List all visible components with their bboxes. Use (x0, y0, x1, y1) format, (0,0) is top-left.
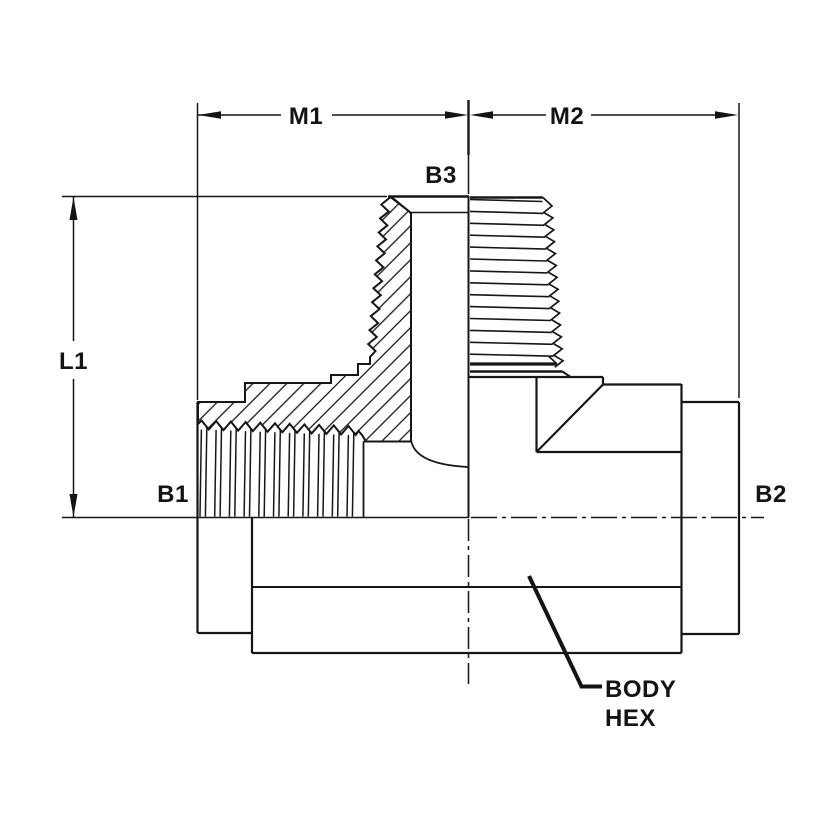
female-thread-lines (200, 428, 354, 517)
port-label-b2: B2 (755, 481, 787, 508)
engineering-drawing-canvas: M1 M2 L1 B1 B2 B3 BODY HEX (0, 0, 840, 840)
dim-label-m1: M1 (289, 103, 323, 130)
arrowhead (70, 197, 78, 220)
callout-body-hex-line1: BODY (605, 676, 676, 703)
leader-line (529, 576, 602, 687)
port-label-b3: B3 (425, 162, 457, 189)
arrowhead (198, 111, 221, 119)
arrowhead (70, 494, 78, 517)
dim-label-m2: M2 (550, 103, 584, 130)
section-hatch-area (198, 198, 411, 442)
male-thread-lines (470, 198, 563, 368)
arrowhead (445, 111, 468, 119)
arrowhead (470, 111, 493, 119)
tee-fitting-drawing: M1 M2 L1 B1 B2 B3 BODY HEX (0, 0, 840, 840)
port-label-b1: B1 (157, 481, 189, 508)
callout-body-hex-line2: HEX (605, 705, 656, 732)
arrowhead (715, 111, 738, 119)
dim-label-l1: L1 (59, 348, 88, 375)
centerlines (469, 518, 765, 685)
